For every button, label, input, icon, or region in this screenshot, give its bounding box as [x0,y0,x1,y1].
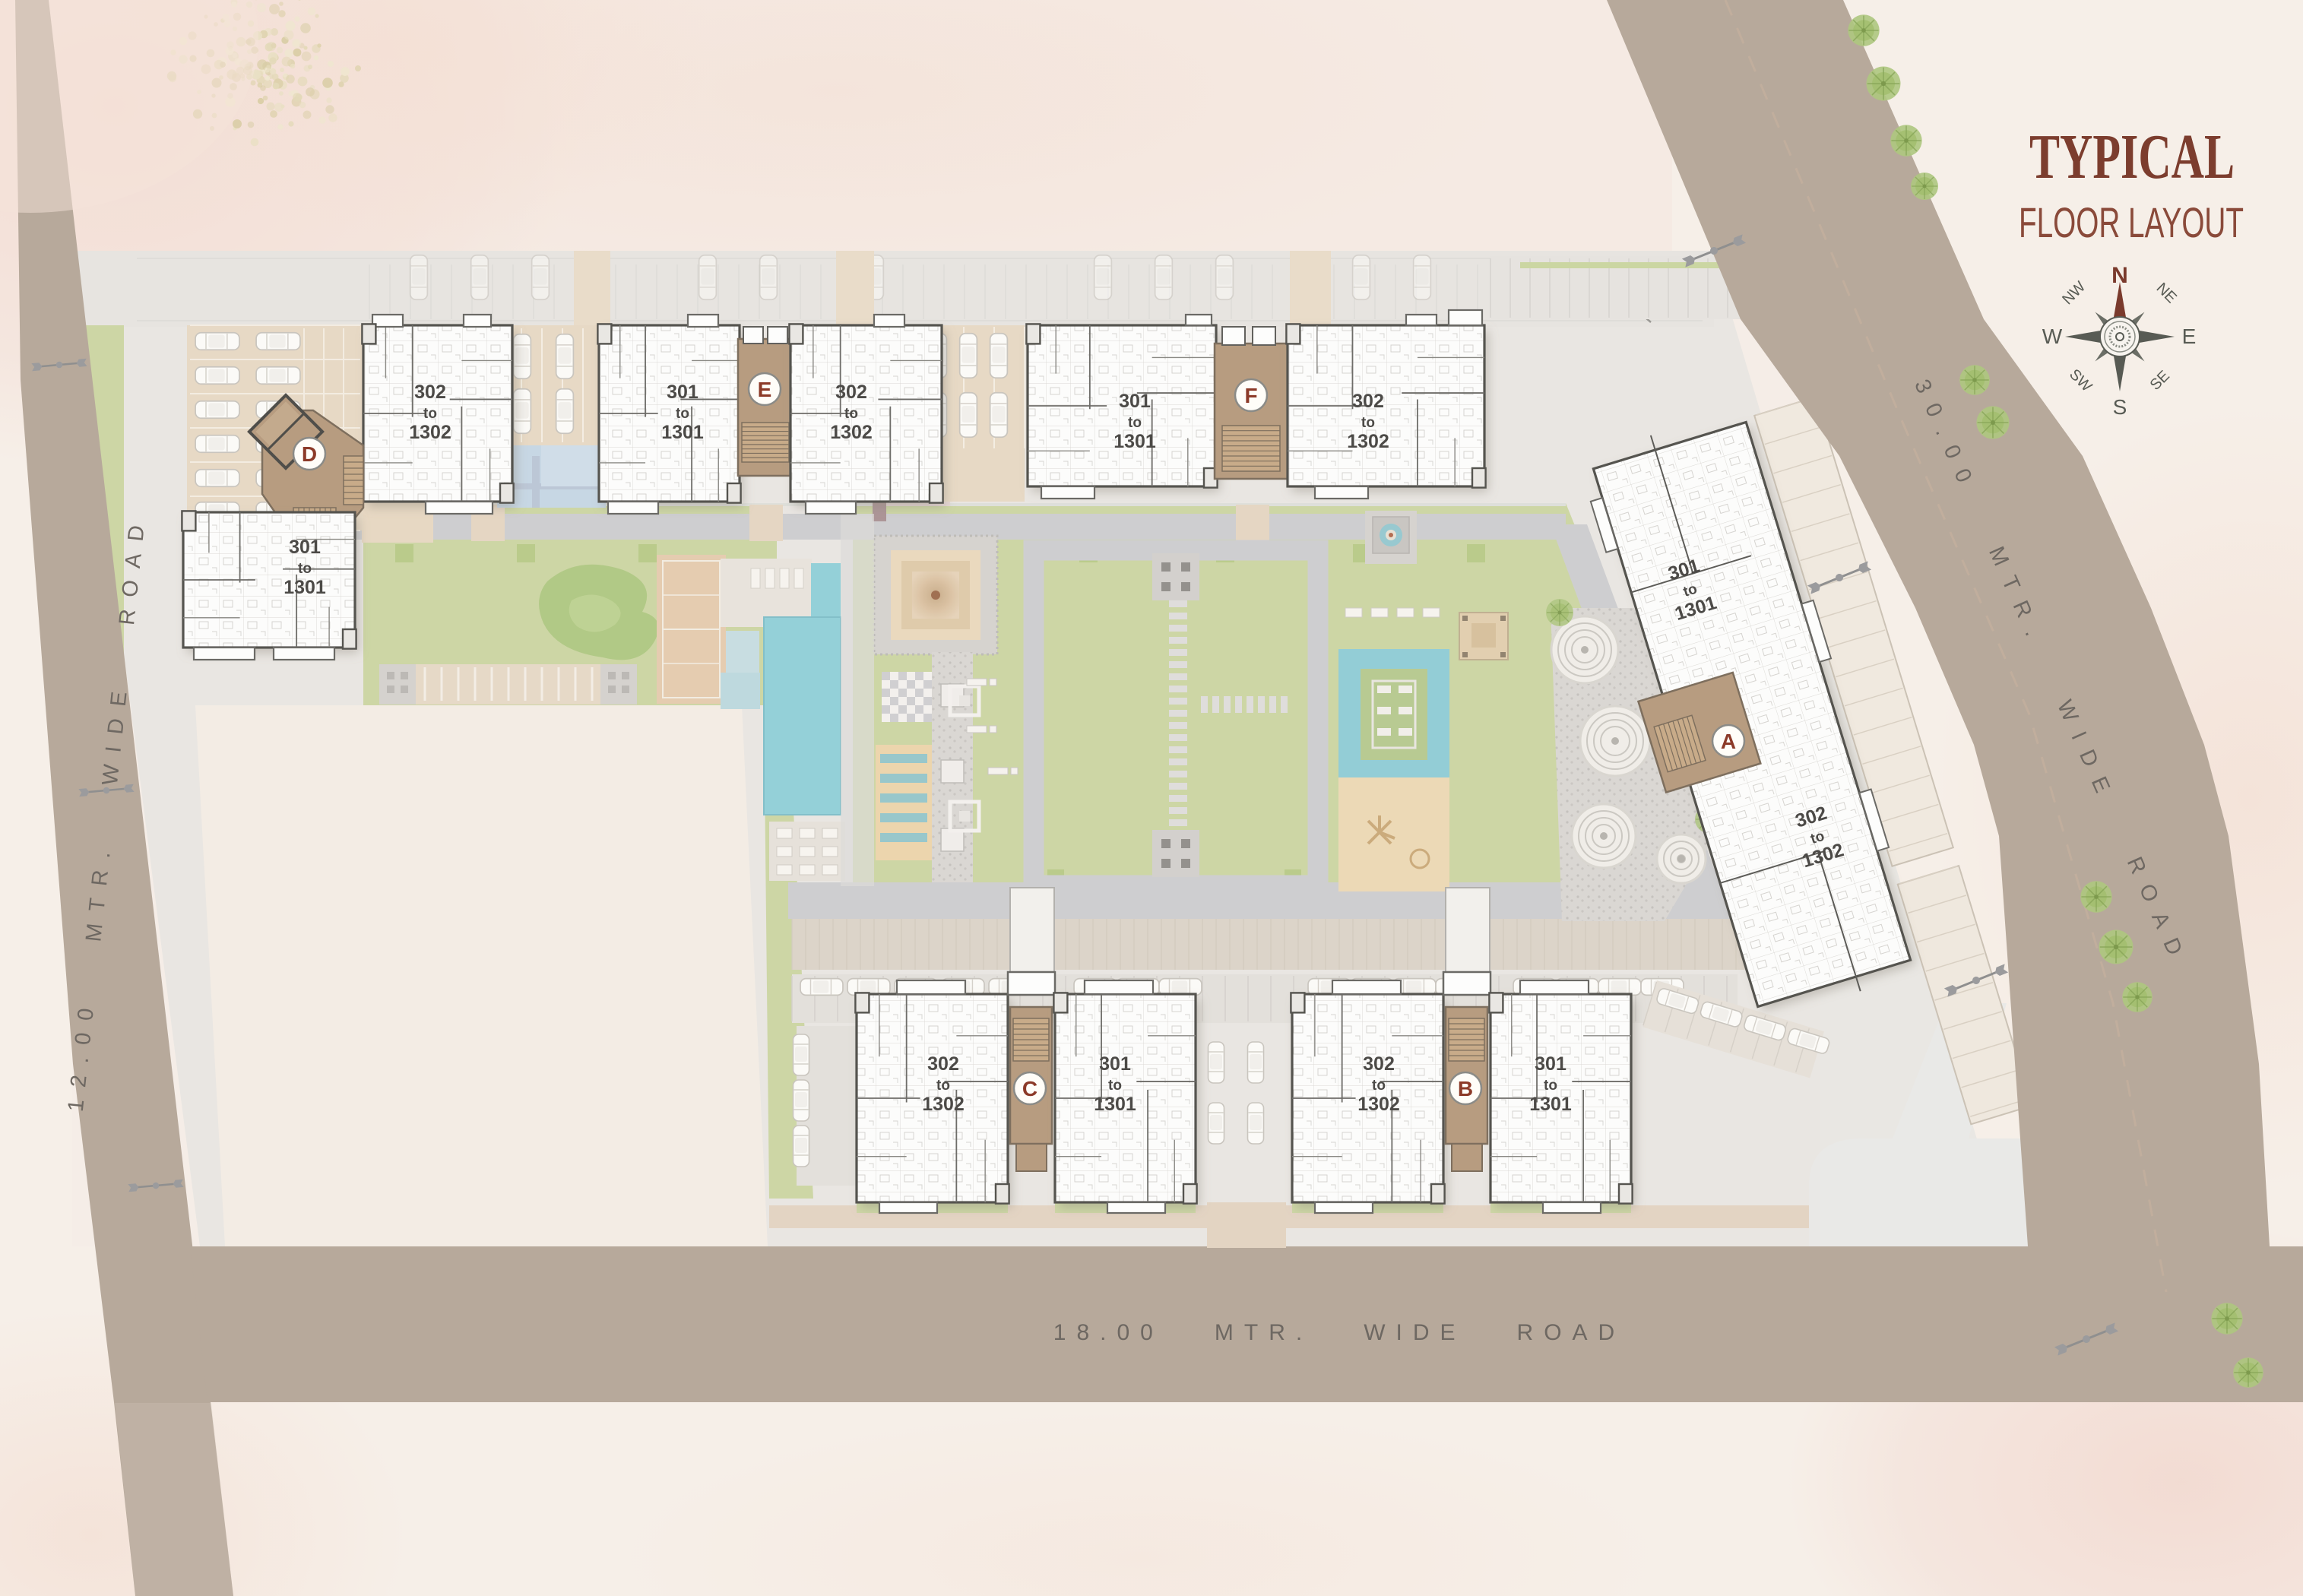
svg-text:D: D [302,442,317,466]
svg-text:TYPICAL: TYPICAL [2029,122,2235,192]
svg-text:E: E [2182,325,2197,348]
svg-text:B: B [1458,1077,1473,1100]
svg-text:FLOOR LAYOUT: FLOOR LAYOUT [2019,198,2244,246]
svg-text:S: S [2113,395,2127,419]
svg-text:E: E [758,378,772,401]
svg-text:W: W [2042,325,2063,348]
svg-text:N: N [2111,263,2128,288]
svg-text:F: F [1244,384,1257,407]
svg-text:A: A [1721,730,1736,753]
svg-text:18.00 MTR. WIDE ROAD: 18.00 MTR. WIDE ROAD [1053,1320,1625,1345]
svg-text:C: C [1022,1077,1037,1100]
